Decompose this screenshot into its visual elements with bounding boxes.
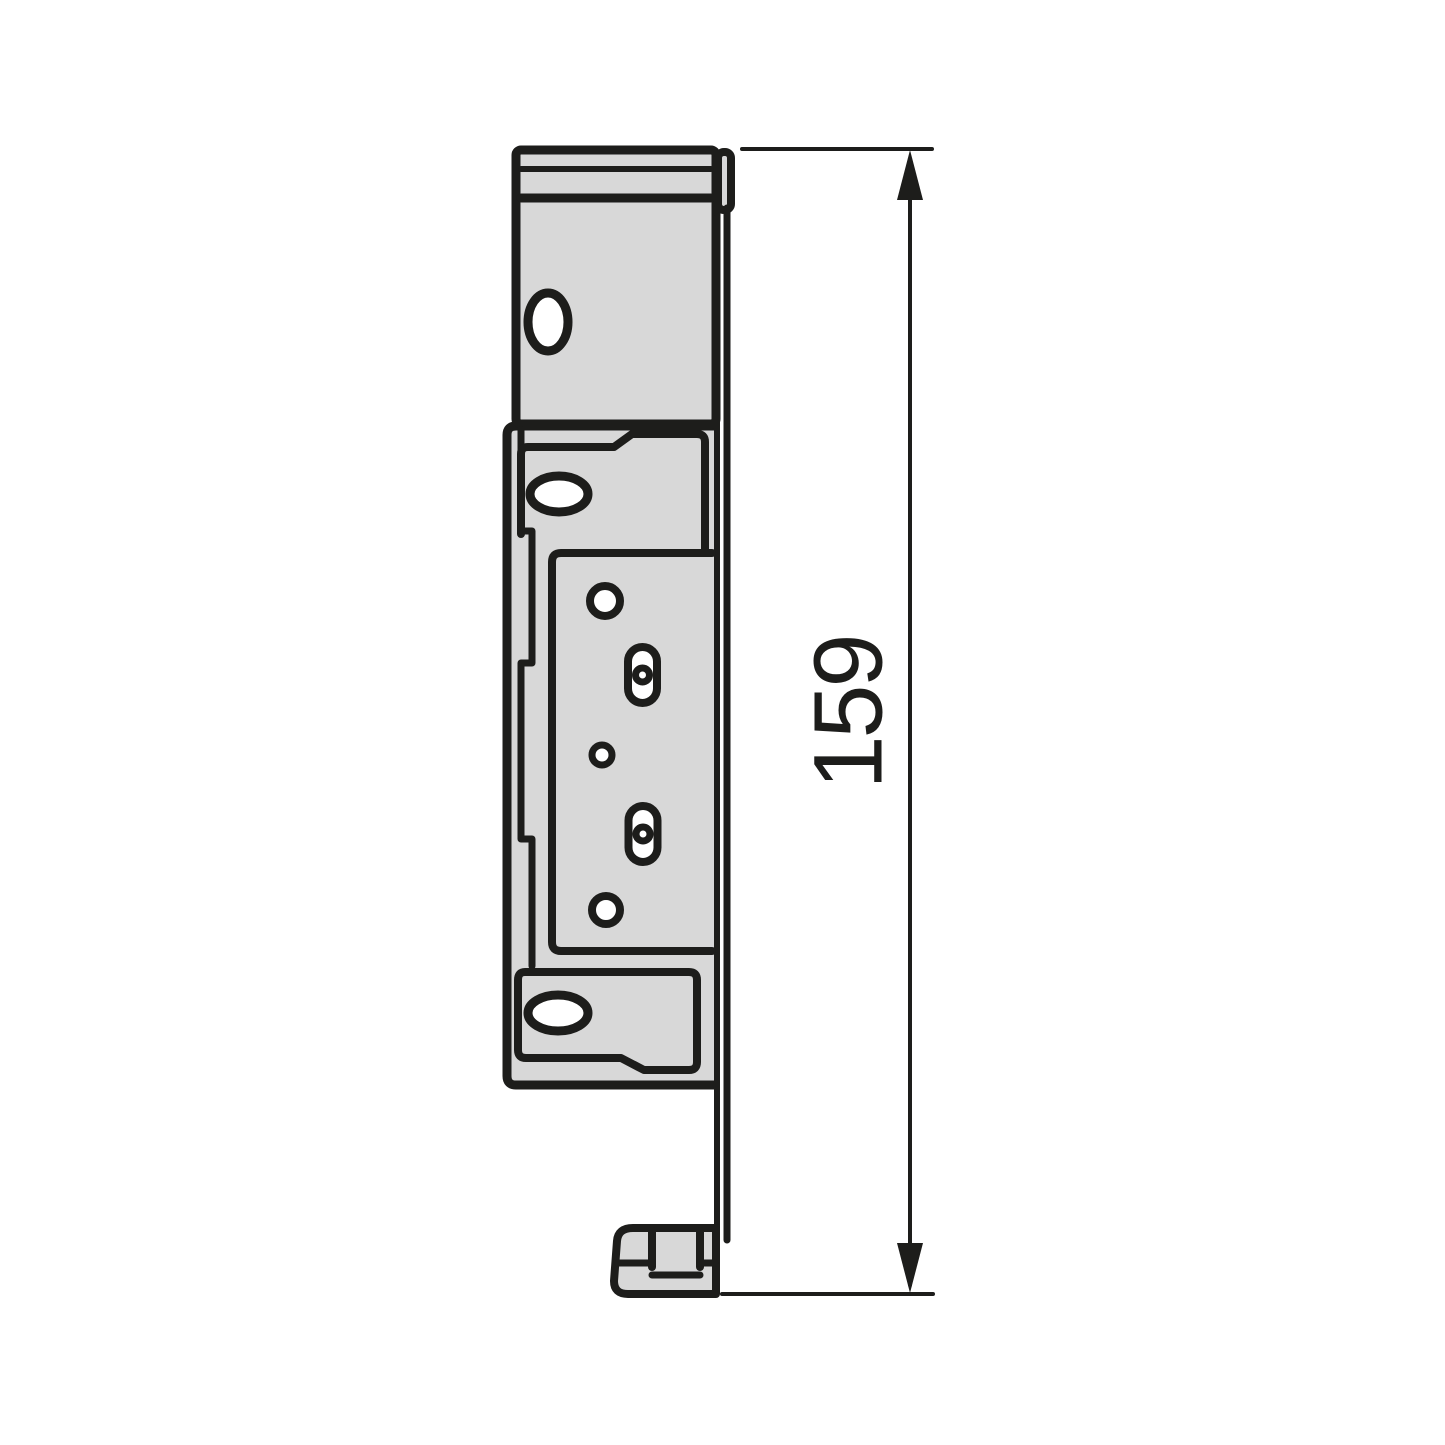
bracket-side-view <box>507 150 731 1294</box>
top-plate <box>516 150 716 424</box>
lower-mount-slot <box>528 995 588 1031</box>
slot-upper-pin-hole <box>636 668 650 682</box>
top-plate-slot <box>528 293 568 351</box>
hole-bottom-circle <box>592 896 620 924</box>
dimension-label: 159 <box>794 637 903 790</box>
upper-mount-slot <box>530 476 588 512</box>
drawing-page: 159 <box>0 0 1445 1445</box>
drawing-canvas: 159 <box>0 0 1445 1445</box>
dimension-annotation: 159 <box>722 149 933 1294</box>
right-flange-step <box>718 152 731 210</box>
hole-top-circle <box>590 586 620 616</box>
arrowhead-up-icon <box>897 150 923 200</box>
arrowhead-down-icon <box>897 1243 923 1293</box>
slot-lower-pin-hole <box>636 827 650 841</box>
hole-center-circle <box>592 745 612 765</box>
